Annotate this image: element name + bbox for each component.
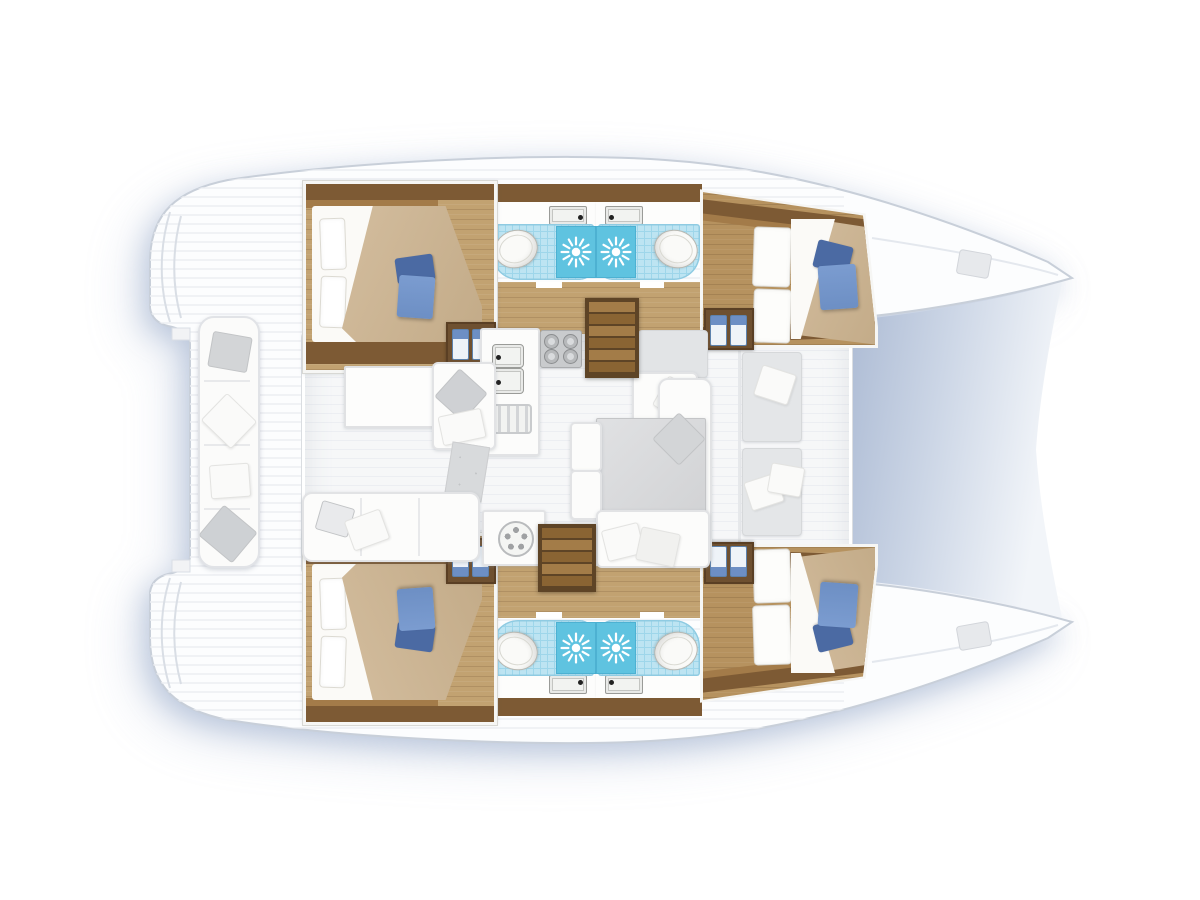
bow-hatch-port (956, 249, 992, 278)
washbasin-sink (549, 206, 587, 225)
burner-icon (544, 349, 559, 364)
forward-seat-pad (638, 330, 708, 378)
white-pillow (437, 408, 486, 446)
bed-pillow (319, 218, 347, 271)
step (542, 564, 592, 574)
aft-sofa (302, 492, 480, 562)
blue-accent-pillow (818, 264, 859, 311)
locker-door (752, 548, 792, 603)
catamaran-floor-plan (0, 0, 1200, 900)
corridor-starboard (490, 566, 702, 618)
burner-icon (563, 334, 578, 349)
cushion-seam (418, 498, 420, 556)
washbasin-sink (605, 206, 643, 225)
locker-item-icon (452, 329, 469, 360)
forward-bulkhead-line (738, 334, 741, 566)
step (542, 552, 592, 562)
bathroom-starboard-aft (490, 616, 596, 716)
locker-door (752, 604, 792, 665)
stern-step (172, 560, 190, 572)
seat-pillow (753, 364, 797, 406)
companionway-steps-starboard (538, 524, 596, 592)
washbasin-sink (605, 675, 643, 694)
bench-pillow (207, 331, 253, 373)
blue-accent-pillow (818, 582, 859, 629)
cushion-seam (204, 380, 250, 382)
shower (596, 622, 636, 674)
stove-four-burners (540, 330, 582, 368)
hull-side-cabinet (490, 698, 596, 716)
hull-side-cabinet (596, 184, 702, 202)
forward-cabin-port (700, 186, 878, 348)
blue-accent-pillow (397, 275, 436, 319)
bathroom-port-forward (596, 184, 702, 284)
forward-cabin-starboard (700, 544, 878, 706)
dining-seat-bottom (596, 510, 710, 568)
shower (556, 226, 596, 278)
companionway-steps-port (585, 298, 639, 378)
burner-icon (563, 349, 578, 364)
locker-item-icon (710, 315, 727, 346)
shower-spray-icon (559, 631, 593, 665)
step (589, 350, 635, 360)
step (589, 314, 635, 324)
locker-item-icon (730, 546, 747, 577)
galley-sink (492, 344, 524, 368)
step (589, 302, 635, 312)
shower-spray-icon (599, 631, 633, 665)
bathroom-port-aft (490, 184, 596, 284)
galley-sink (492, 368, 524, 394)
double-bed (312, 564, 482, 700)
bow-hatch-starboard (956, 621, 992, 650)
aft-cabin-port (303, 181, 497, 373)
stern-step (172, 328, 190, 340)
step (542, 576, 592, 586)
bench-pillow (201, 393, 258, 450)
seat-pillow (635, 526, 681, 568)
bathroom-starboard-forward (596, 616, 702, 716)
round-sink-icon (498, 521, 534, 557)
coffee-table (344, 366, 434, 428)
bed-pillow (319, 276, 347, 329)
seat-pillow (767, 462, 806, 497)
step (589, 362, 635, 372)
galley-aft-unit (482, 510, 546, 566)
hull-side-cabinet (306, 184, 494, 200)
step (589, 338, 635, 348)
bench-pillow (209, 463, 251, 500)
washbasin-sink (549, 675, 587, 694)
bed-pillow (319, 636, 347, 689)
blue-accent-pillow (397, 587, 436, 631)
locker-door (752, 226, 792, 287)
dining-seat-left-cushion (570, 422, 602, 472)
hull-side-cabinet (306, 706, 494, 722)
locker-item-icon (710, 546, 727, 577)
locker-item-icon (730, 315, 747, 346)
step (542, 540, 592, 550)
shower-spray-icon (599, 235, 633, 269)
step (542, 528, 592, 538)
bench-pillow (198, 505, 257, 564)
locker-door (752, 288, 792, 343)
step (589, 326, 635, 336)
wardrobe-locker (704, 308, 754, 350)
hull-side-cabinet (596, 698, 702, 716)
shower (556, 622, 596, 674)
cockpit-bench (198, 316, 260, 568)
foredeck-lounge-seat (742, 448, 802, 536)
lounge-seat (432, 362, 496, 450)
shower-spray-icon (559, 235, 593, 269)
hull-side-cabinet (490, 184, 596, 202)
shower (596, 226, 636, 278)
fridge-grille-icon (490, 404, 532, 434)
foredeck-lounge-seat (742, 352, 802, 442)
bed-pillow (319, 578, 347, 631)
burner-icon (544, 334, 559, 349)
